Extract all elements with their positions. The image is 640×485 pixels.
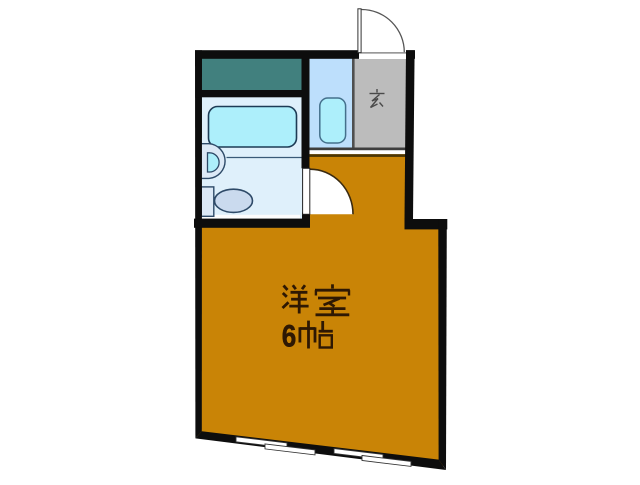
- svg-text:6: 6: [282, 318, 297, 354]
